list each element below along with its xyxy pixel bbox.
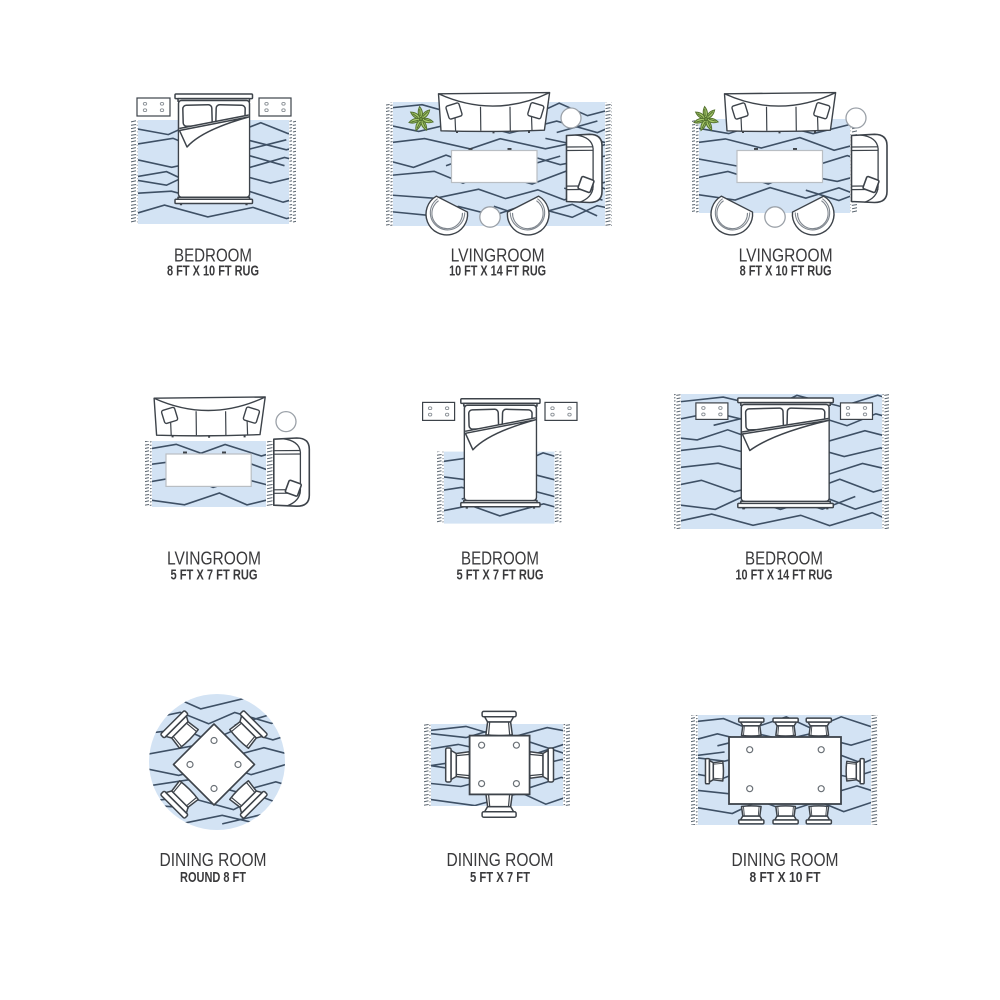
svg-text:5 FT X 7 FT: 5 FT X 7 FT (470, 869, 530, 886)
svg-text:8 FT X 10 FT RUG: 8 FT X 10 FT RUG (740, 262, 832, 279)
svg-text:DINING ROOM: DINING ROOM (447, 849, 554, 870)
svg-text:8 FT X 10 FT RUG: 8 FT X 10 FT RUG (167, 262, 259, 279)
svg-text:5 FT X 7 FT RUG: 5 FT X 7 FT RUG (457, 566, 544, 583)
svg-text:8 FT X 10 FT: 8 FT X 10 FT (750, 869, 821, 886)
svg-text:5 FT X 7 FT RUG: 5 FT X 7 FT RUG (171, 566, 258, 583)
svg-text:DINING ROOM: DINING ROOM (160, 849, 267, 870)
svg-text:10 FT X 14 FT RUG: 10 FT X 14 FT RUG (449, 262, 546, 279)
svg-text:ROUND 8 FT: ROUND 8 FT (180, 869, 246, 886)
svg-text:10 FT X 14 FT RUG: 10 FT X 14 FT RUG (736, 566, 833, 583)
svg-text:DINING ROOM: DINING ROOM (732, 849, 839, 870)
